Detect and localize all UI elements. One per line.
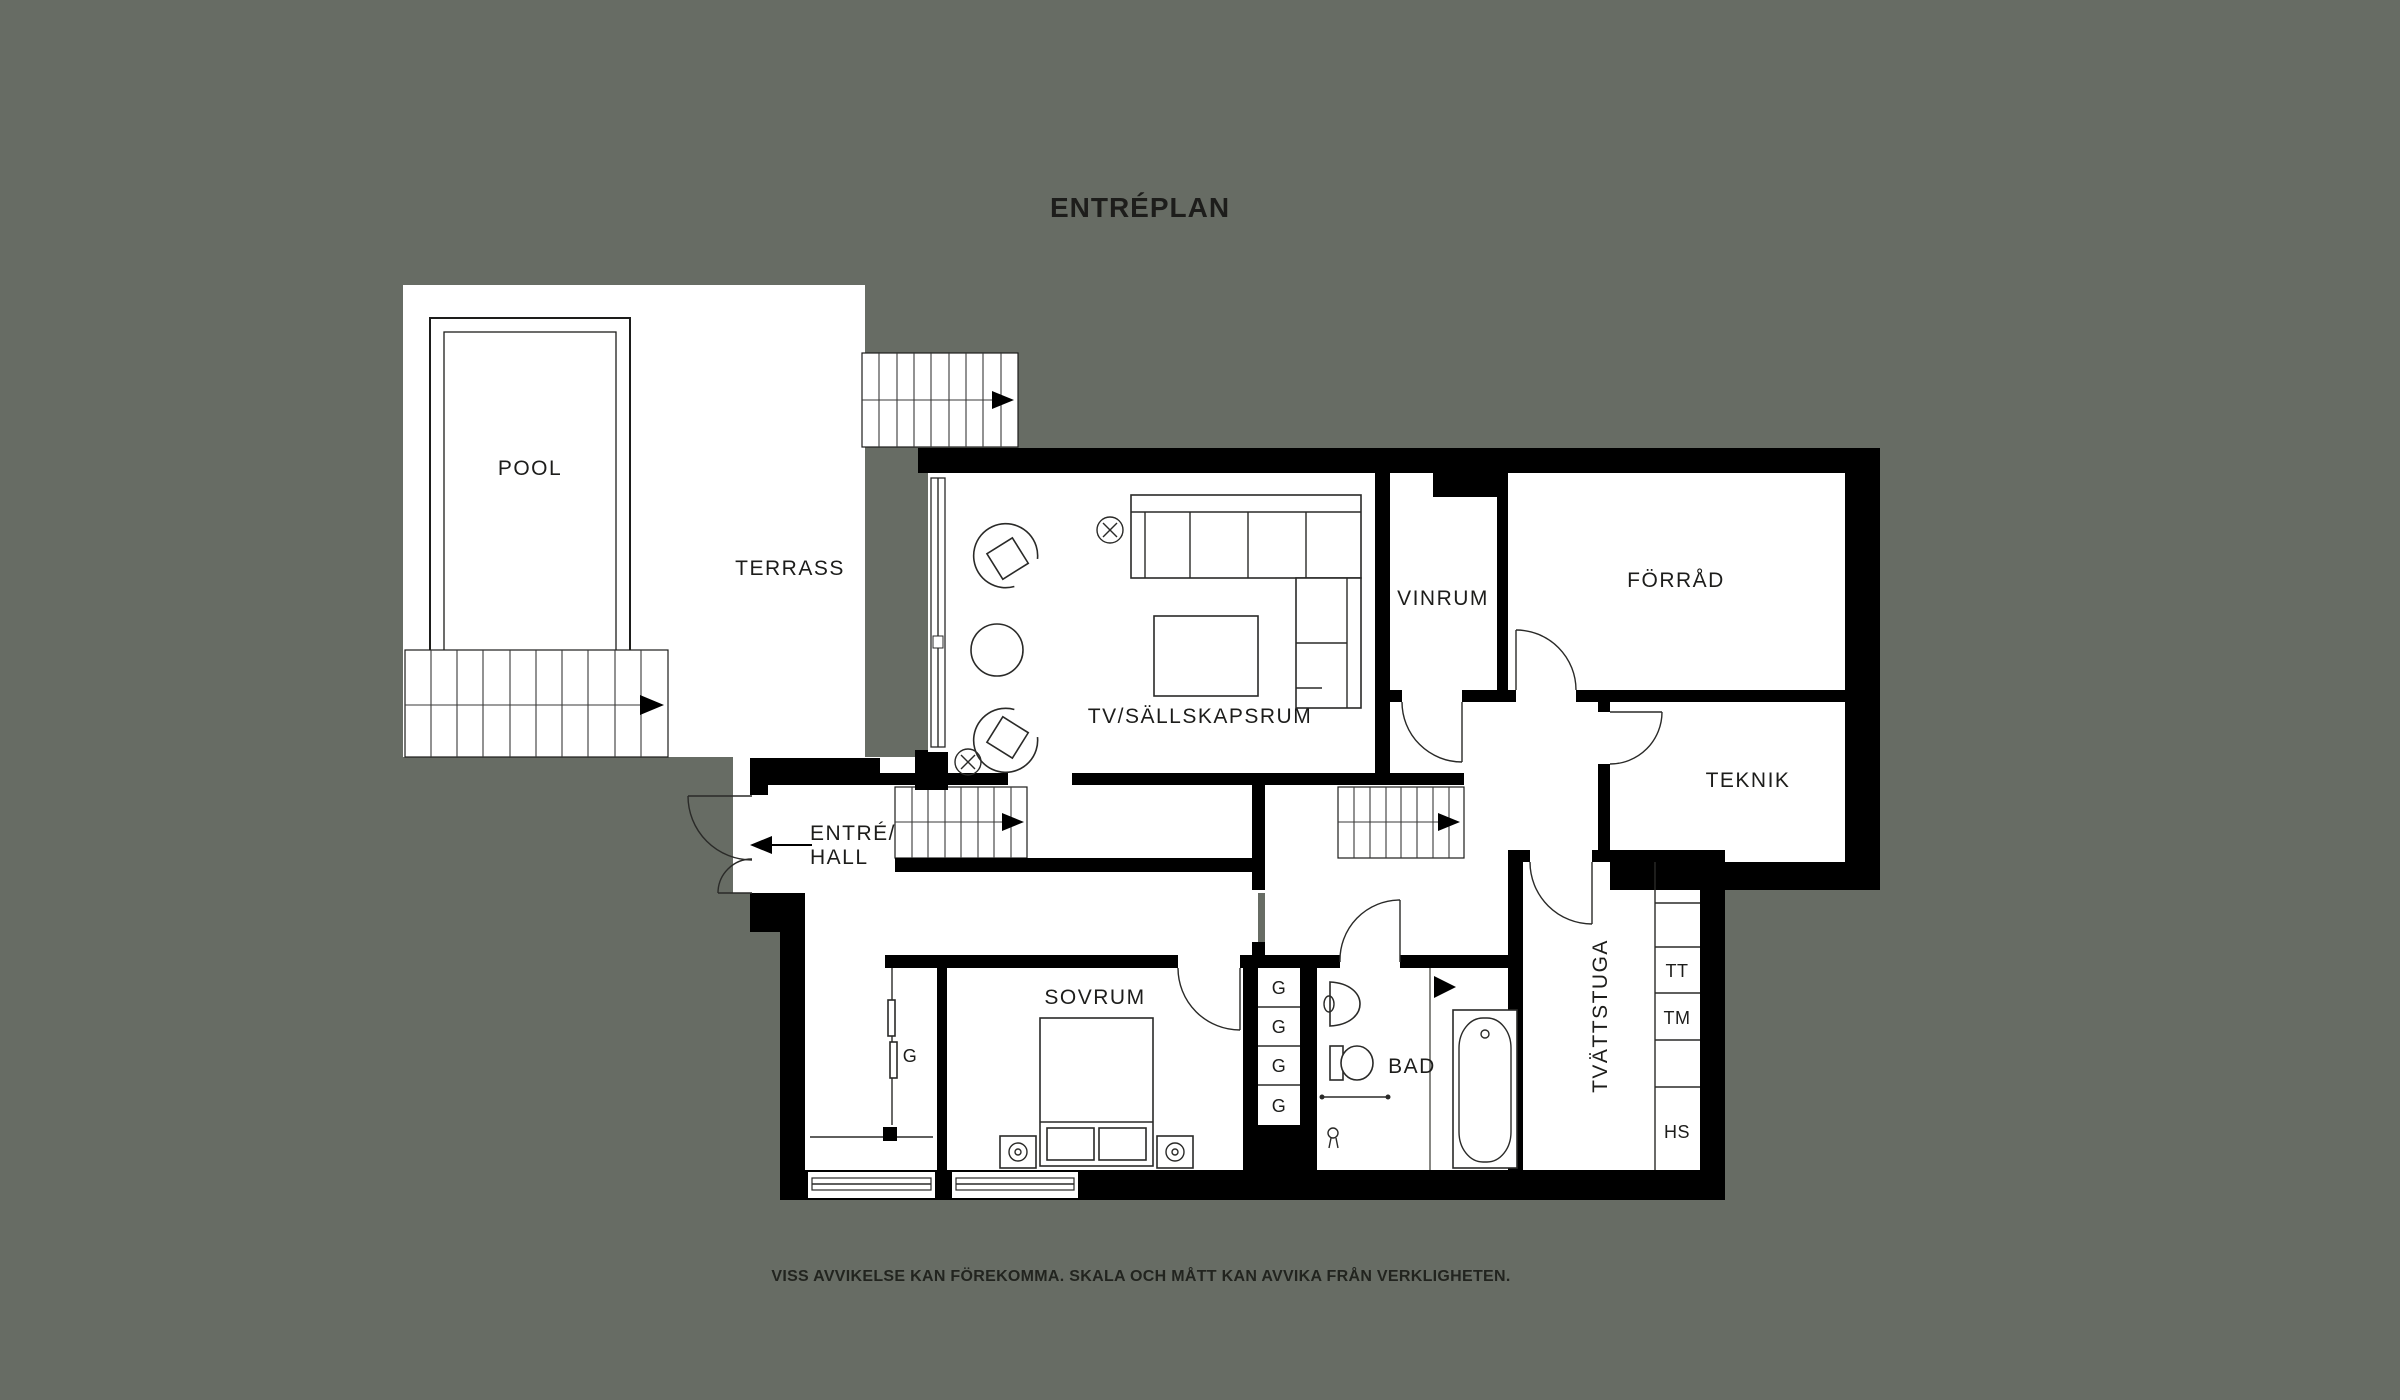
floorplan-canvas: ENTRÉPLAN POOL TERRASS TV/SÄLLSKAPSRUM V… [0,0,2400,1400]
stairs-east [1338,787,1464,858]
side-table [971,624,1023,676]
closet-label-g1: G [1272,978,1287,998]
closet-track-block [883,1127,897,1141]
closet-label-g2: G [1272,1017,1287,1037]
closet-label-g4: G [1272,1096,1287,1116]
room-label-vinrum: VINRUM [1397,587,1489,610]
room-label-teknik: TEKNIK [1706,769,1791,792]
appliance-label-tm: TM [1664,1008,1691,1028]
nightstand-left [1000,1136,1036,1168]
window-south-closet [808,1172,935,1198]
page-title: ENTRÉPLAN [1050,192,1230,223]
stairs-hall [895,787,1027,858]
nightstand-right [1157,1136,1193,1168]
stairs-terrace-east [862,353,1018,447]
appliance-label-hs: HS [1664,1122,1690,1142]
room-label-hall: HALL [810,846,869,869]
room-label-forrad: FÖRRÅD [1627,569,1725,592]
room-label-entre: ENTRÉ/ [810,822,896,845]
closet-label-g3: G [1272,1056,1287,1076]
appliance-label-tt: TT [1666,961,1689,981]
bathtub [1453,1010,1517,1168]
window-south-sovrum [952,1172,1078,1198]
coffee-table [1154,616,1258,696]
room-label-sovrum: SOVRUM [1044,986,1145,1009]
window-tv-west [928,473,948,752]
room-label-terrass: TERRASS [735,557,845,580]
toilet [1330,1046,1373,1080]
pool [430,318,630,692]
room-label-tvattstuga: TVÄTTSTUGA [1589,939,1612,1093]
room-label-pool: POOL [498,457,562,480]
room-label-bad: BAD [1388,1055,1436,1078]
dressing-nook-floor [805,908,892,1170]
room-label-tv: TV/SÄLLSKAPSRUM [1088,705,1312,728]
stairs-terrace-west [405,650,668,757]
closet-label-g: G [903,1046,918,1066]
bed [1040,1018,1153,1166]
disclaimer-text: VISS AVVIKELSE KAN FÖREKOMMA. SKALA OCH … [771,1266,1510,1285]
